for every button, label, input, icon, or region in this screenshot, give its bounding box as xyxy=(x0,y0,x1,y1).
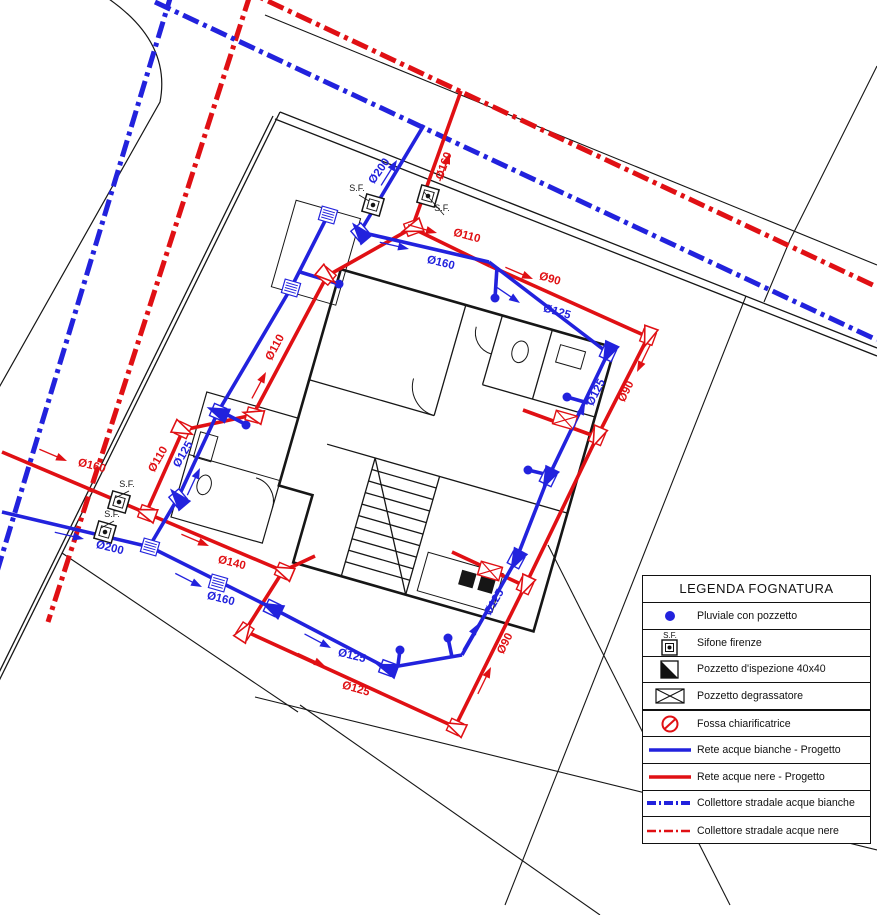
grate-icon xyxy=(318,206,337,224)
pluviale-pozzetto-icon xyxy=(444,634,453,643)
grate-icon xyxy=(281,279,300,297)
legend-title: LEGENDA FOGNATURA xyxy=(643,576,870,603)
grate-box xyxy=(318,206,337,224)
pluviale-dot-icon xyxy=(643,607,697,625)
legend-row-label: Pluviale con pozzetto xyxy=(697,610,797,622)
arrow-head xyxy=(509,294,523,307)
pipe-diameter-label: Ø160 xyxy=(206,590,236,608)
pipe-acque-nere xyxy=(490,266,648,337)
pozzetto-ispezione-icon xyxy=(643,659,697,679)
pozzetto-ispezione-icon xyxy=(443,716,467,737)
collettore-bianche-top xyxy=(155,2,877,340)
legend-row: Pluviale con pozzetto xyxy=(643,603,870,630)
legend-row: Pozzetto degrassatore xyxy=(643,683,870,710)
pozzetto-ispezione-icon xyxy=(348,220,372,244)
pipe-diameter-label: Ø125 xyxy=(341,679,372,698)
pluviale-pozzetto-icon xyxy=(242,421,251,430)
grate-box xyxy=(140,538,159,556)
legend-row: S.F.Sifone firenze xyxy=(643,630,870,657)
grate-icon xyxy=(140,538,159,556)
street-curb xyxy=(0,0,162,400)
legend-row: Rete acque bianche - Progetto xyxy=(643,737,870,764)
sifone-firenze-icon: S.F. xyxy=(643,630,697,656)
lot-line-bottom-1 xyxy=(62,553,298,712)
street-collectors-layer xyxy=(0,0,877,622)
pipe-diameter-label: Ø160 xyxy=(426,254,456,272)
arrow-head xyxy=(319,639,332,651)
pipe-acque-bianche xyxy=(272,608,387,668)
pluviale-pozzetto-icon xyxy=(335,280,344,289)
legend-row: Pozzetto d'ispezione 40x40 xyxy=(643,657,870,684)
legend-row-label: Pozzetto d'ispezione 40x40 xyxy=(697,663,826,675)
legend-box: LEGENDA FOGNATURA Pluviale con pozzettoS… xyxy=(642,575,871,844)
arrow-head xyxy=(55,453,68,465)
rete-bianche-line-icon xyxy=(643,746,697,754)
grate-icon xyxy=(208,574,227,592)
collettore-nere-line-icon xyxy=(643,827,697,835)
pozzetto-ispezione-icon xyxy=(587,425,608,449)
pipe-acque-bianche xyxy=(152,498,178,542)
pipe-diameter-label: Ø90 xyxy=(616,379,637,404)
pozzetto-ispezione-icon xyxy=(505,548,527,572)
lot-corner-top-right xyxy=(764,66,877,302)
pipe-acque-bianche xyxy=(495,267,497,298)
door-arc xyxy=(249,478,279,508)
grate-box xyxy=(208,574,227,592)
door-arc xyxy=(405,378,442,415)
arrow-head xyxy=(190,578,203,590)
pipe-diameter-label: Ø110 xyxy=(452,227,482,246)
pipe-acque-nere xyxy=(245,631,455,727)
pluviale-pozzetto-icon xyxy=(491,294,500,303)
pozzetto-ispezione-icon xyxy=(271,561,295,582)
legend-row-label: Fossa chiarificatrice xyxy=(697,718,791,730)
flow-arrow-icon xyxy=(38,446,69,465)
sf-label: S.F. xyxy=(119,479,135,489)
svg-text:S.F.: S.F. xyxy=(663,631,677,640)
legend-row: Collettore stradale acque nere xyxy=(643,817,870,844)
pluviale-pozzetto-icon xyxy=(563,393,572,402)
arrow-head xyxy=(257,370,269,383)
pozzetto-ispezione-icon xyxy=(206,402,230,423)
legend-row-label: Collettore stradale acque nere xyxy=(697,825,839,837)
pipe-diameter-label: Ø125 xyxy=(542,302,573,321)
site-plan-page: S.F.S.F.S.F.S.F.Ø160Ø110Ø90Ø90Ø90Ø125Ø14… xyxy=(0,0,877,915)
property-wall-left-b xyxy=(0,116,273,701)
legend-row-label: Collettore stradale acque bianche xyxy=(697,797,855,809)
annex-wall xyxy=(189,454,280,480)
grate-box xyxy=(281,279,300,297)
flow-arrow-icon xyxy=(248,370,269,400)
arrow-tail xyxy=(252,380,262,399)
pozzetto-ispezione-icon xyxy=(375,658,399,678)
legend-row: Collettore stradale acque bianche xyxy=(643,791,870,818)
sf-label: S.F. xyxy=(349,183,365,193)
collettore-bianche-line-icon xyxy=(643,799,697,807)
pipe-diameter-label: Ø90 xyxy=(495,631,516,656)
legend-row-label: Rete acque nere - Progetto xyxy=(697,771,825,783)
pipe-diameter-label: Ø125 xyxy=(337,647,368,666)
sf-label: S.F. xyxy=(104,509,120,519)
pluviale-pozzetto-icon xyxy=(524,466,533,475)
legend-row: Rete acque nere - Progetto xyxy=(643,764,870,791)
pozzetto-ispezione-icon xyxy=(514,574,535,598)
lot-line-bottom-3 xyxy=(300,705,600,915)
pipe-diameter-label: Ø140 xyxy=(217,554,247,572)
pluviale-pozzetto-icon xyxy=(396,646,405,655)
sf-label: S.F. xyxy=(434,203,450,213)
pozzetto-ispezione-icon xyxy=(638,325,658,349)
pozzetto-ispezione-icon xyxy=(234,619,257,643)
rete-nere-line-icon xyxy=(643,773,697,781)
fossa-chiarificatrice-icon xyxy=(643,714,697,734)
property-wall-left-a xyxy=(0,112,280,695)
legend-row-label: Sifone firenze xyxy=(697,637,762,649)
pozzetto-ispezione-icon xyxy=(537,466,558,490)
legend-row-label: Pozzetto degrassatore xyxy=(697,690,803,702)
legend-row: Fossa chiarificatrice xyxy=(643,710,870,737)
legend-row-label: Rete acque bianche - Progetto xyxy=(697,744,841,756)
pozzetto-degrassatore-icon xyxy=(643,687,697,705)
legend-rows: Pluviale con pozzettoS.F.Sifone firenzeP… xyxy=(643,603,870,844)
pipe-diameter-label: Ø90 xyxy=(538,270,562,288)
pozzetto-ispezione-icon xyxy=(134,503,158,523)
arrow-tail xyxy=(175,573,194,583)
pozzetto-ispezione-icon xyxy=(166,486,190,510)
arrow-tail xyxy=(39,449,58,457)
door-arc xyxy=(470,327,497,354)
sifone-firenze-icon xyxy=(362,194,384,216)
pipe-acque-nere xyxy=(253,276,327,415)
arrow-tail xyxy=(305,634,324,644)
